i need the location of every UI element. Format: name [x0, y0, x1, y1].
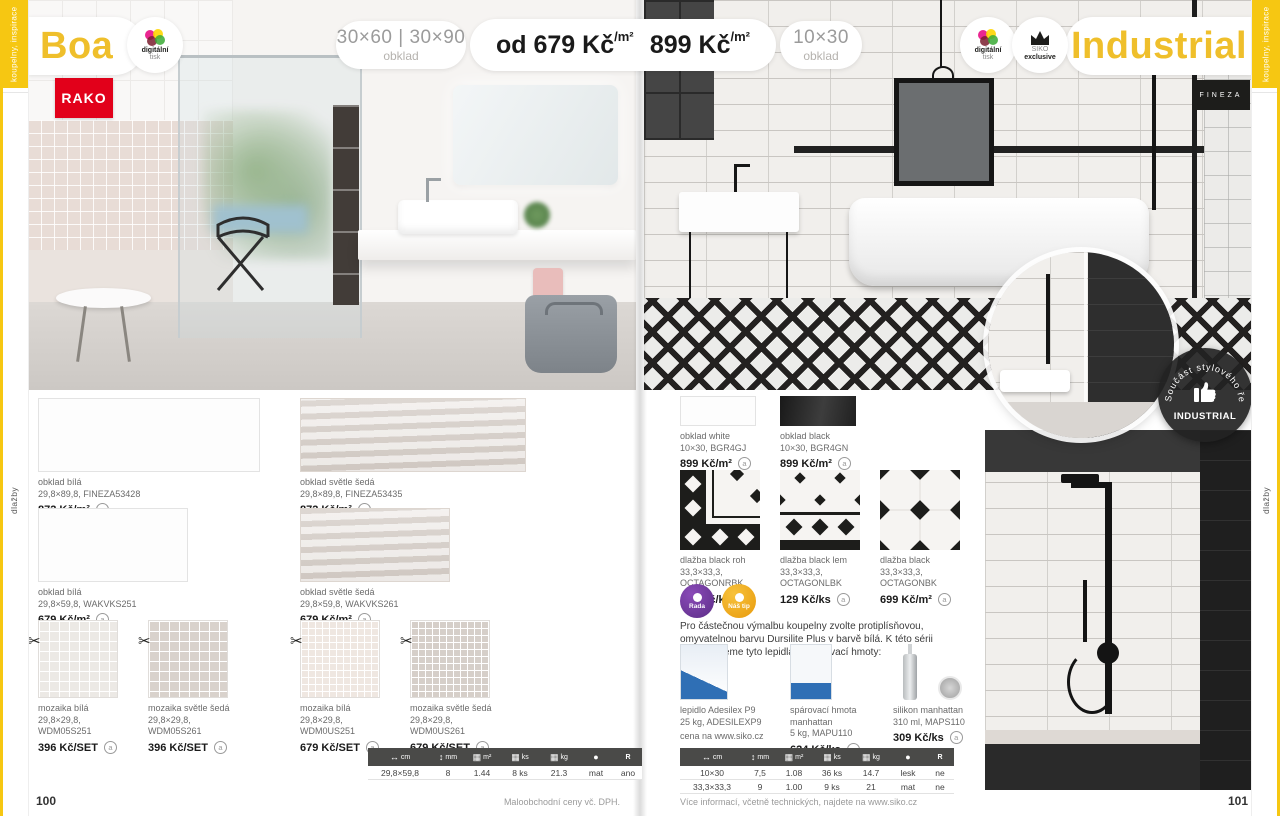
thickness-col-header: ↕mm: [432, 753, 464, 762]
product-card: dlažba black lem 33,3×33,3, OCTAGONLBK 1…: [780, 470, 870, 606]
corner-tab: koupelny, inspirace: [1252, 0, 1280, 88]
product-card: lepidlo Adesilex P9 25 kg, ADESILEXP9 ce…: [680, 644, 784, 743]
scissors-icon: ✂: [28, 632, 41, 650]
product-card: obklad white 10×30, BGR4GJ 899 Kč/m²a: [680, 396, 770, 470]
tile-octagon-black-image: [880, 470, 960, 550]
corner-tab: koupelny, inspirace: [0, 0, 28, 88]
right-category-sidebar: koupelny, inspirace dlažby stavební chem…: [1251, 0, 1280, 816]
industrial-price: 899 Kč/m²: [650, 31, 750, 60]
plant: [524, 202, 550, 228]
shower-hose: [1067, 650, 1117, 714]
page-gutter: [633, 0, 647, 816]
hand-shower: [1083, 580, 1087, 642]
size-col-header: ↔cm: [680, 753, 744, 762]
framed-mirror: [894, 78, 994, 186]
washbasin: [398, 200, 518, 234]
tile-image: [300, 398, 526, 472]
fineza-logo: FINEZA: [1192, 80, 1250, 110]
pcs-col-header: ▦ks: [500, 753, 540, 762]
mirror: [453, 85, 618, 185]
digital-print-icon: [143, 29, 167, 47]
availability-icon: a: [837, 593, 850, 606]
faucet: [426, 178, 429, 202]
tile-octagon-border-image: [780, 470, 860, 550]
product-card: ✂ mozaika bílá 29,8×29,8, WDM0US251 679 …: [300, 620, 394, 754]
surface-col-header: ●: [890, 753, 926, 762]
tip-badge: Náš tip: [722, 584, 756, 618]
rectified-col-header: R: [926, 754, 954, 761]
series-title-boa: Boa: [40, 25, 113, 68]
sqm-col-header: ▦m²: [464, 753, 500, 762]
box-icon: ▦: [473, 753, 482, 762]
thickness-col-header: ↕mm: [744, 753, 776, 762]
surface-icon: ●: [593, 753, 598, 762]
product-card: dlažba black 33,3×33,3, OCTAGONBK 699 Kč…: [880, 470, 970, 606]
availability-icon: a: [214, 741, 227, 754]
mosaic-image: [410, 620, 490, 698]
kg-col-header: ▦kg: [540, 753, 578, 762]
product-card: obklad světle šedá 29,8×59,8, WAKVKS261 …: [300, 508, 450, 626]
inset-basin: [1000, 370, 1070, 392]
box-icon: ▦: [823, 753, 832, 762]
inset-shower-bar: [1046, 274, 1050, 364]
availability-icon: a: [104, 741, 117, 754]
console-washbasin: [679, 192, 799, 232]
scissors-icon: ✂: [400, 632, 413, 650]
tile-image: [680, 396, 756, 426]
product-card: ✂ mozaika světle šedá 29,8×29,8, WDM0US2…: [410, 620, 504, 754]
box-icon: ▦: [862, 753, 871, 762]
side-table-top: [56, 288, 151, 308]
spec-table-industrial: ↔cm ↕mm ▦m² ▦ks ▦kg ● R 10×307,51.0836 k…: [680, 748, 954, 794]
pcs-col-header: ▦ks: [812, 753, 852, 762]
rada-badge: Rada: [680, 584, 714, 618]
availability-icon: a: [938, 593, 951, 606]
color-swatch: [938, 676, 962, 700]
box-icon: ▦: [550, 753, 559, 762]
faucet-spout: [426, 178, 441, 181]
footer-note-right: Více informací, včetně technických, najd…: [680, 797, 917, 807]
tip-icon: [735, 593, 744, 602]
page-number-right: 101: [1228, 794, 1248, 808]
inset-circle-photo: [988, 252, 1174, 438]
left-category-sidebar: koupelny, inspirace dlažby stavební chem…: [0, 0, 29, 816]
product-card: spárovací hmota manhattan 5 kg, MAPU110 …: [790, 644, 890, 756]
shelf-unit: [333, 105, 359, 305]
scissors-icon: ✂: [138, 632, 151, 650]
price-pill: od 679 Kč/m² 899 Kč/m²: [470, 19, 776, 71]
table-row: 33,3×33,391.009 ks21matne: [680, 780, 954, 794]
surface-col-header: ●: [578, 753, 614, 762]
product-card: silikon manhattan 310 ml, MAPS110 309 Kč…: [893, 644, 973, 744]
shower-detail-photo: [985, 430, 1252, 790]
surface-icon: ●: [905, 753, 910, 762]
mosaic-image: [148, 620, 228, 698]
availability-icon: a: [838, 457, 851, 470]
dark-floor: [985, 744, 1200, 790]
inset-floor: [988, 402, 1174, 438]
box-icon: ▦: [785, 753, 794, 762]
tile-image: [300, 508, 450, 582]
sidebar-item-dlazby[interactable]: dlažby: [0, 92, 28, 816]
catalog-spread: Součást stylového řešení INDUSTRIAL Boa …: [0, 0, 1280, 816]
dark-tile-column: [1200, 430, 1252, 790]
box-icon: ▦: [511, 753, 520, 762]
availability-icon: a: [950, 731, 963, 744]
table-row: 29,8×59,881.448 ks21.3matano: [368, 766, 642, 780]
ledge: [985, 730, 1200, 744]
thickness-icon: ↕: [751, 753, 756, 762]
scissors-icon: ✂: [290, 632, 303, 650]
digital-print-icon: [976, 29, 1000, 47]
size-pill-industrial: 10×30 obklad: [780, 21, 862, 69]
tile-image: [780, 396, 856, 426]
black-faucet: [734, 164, 737, 192]
crown-icon: [1029, 29, 1051, 46]
industrial-series-pill: Industrial: [1066, 17, 1252, 75]
grout-bag-image: [790, 644, 890, 700]
sqm-col-header: ▦m²: [776, 753, 812, 762]
bulb-icon: [693, 593, 702, 602]
basket-handle: [545, 302, 603, 315]
page-number-left: 100: [36, 794, 56, 808]
digital-print-badge-left: digitální tisk: [127, 17, 183, 73]
size-icon: ↔: [390, 753, 399, 762]
size-icon: ↔: [702, 753, 711, 762]
rain-head: [1061, 474, 1099, 483]
product-card: ✂ mozaika bílá 29,8×29,8, WDM05S251 396 …: [38, 620, 132, 754]
digital-print-badge-right: digitální tisk: [960, 17, 1016, 73]
size-col-header: ↔cm: [368, 753, 432, 762]
product-card: ✂ mozaika světle šedá 29,8×29,8, WDM05S2…: [148, 620, 242, 754]
table-row: 10×307,51.0836 ks14.7leskne: [680, 766, 954, 780]
wire-chair: [203, 195, 283, 295]
mosaic-image: [38, 620, 118, 698]
availability-icon: a: [738, 457, 751, 470]
size-pill-boa: 30×60 | 30×90 obklad: [336, 21, 466, 69]
tile-image: [38, 398, 260, 472]
rectified-col-header: R: [614, 754, 642, 761]
thumbs-up-icon: [1194, 382, 1216, 402]
tile-image: [38, 508, 188, 582]
footer-note-left: Maloobchodní ceny vč. DPH.: [380, 797, 620, 807]
product-card: obklad black 10×30, BGR4GN 899 Kč/m²a: [780, 396, 870, 470]
tile-octagon-corner-image: [680, 470, 760, 550]
black-faucet-spout: [734, 164, 750, 167]
vanity-shelf: [358, 230, 636, 260]
pendant-wire: [940, 0, 942, 68]
mosaic-image: [300, 620, 380, 698]
kg-col-header: ▦kg: [852, 753, 890, 762]
adhesive-bag-image: [680, 644, 784, 700]
spec-table-boa: ↔cm ↕mm ▦m² ▦ks ▦kg ● R 29,8×59,881.448 …: [368, 748, 642, 780]
edge-accent-left: [0, 0, 3, 816]
industrial-stamp: Součást stylového řešení INDUSTRIAL: [1158, 348, 1252, 442]
sidebar-item-dlazby[interactable]: dlažby: [1252, 92, 1280, 816]
boa-price: od 679 Kč/m²: [496, 31, 634, 60]
series-title-industrial: Industrial: [1071, 25, 1247, 68]
thickness-icon: ↕: [439, 753, 444, 762]
black-accent-stripe: [794, 146, 1252, 153]
siko-exclusive-badge: SIKO exclusive: [1012, 17, 1068, 73]
product-card: obklad bílá 29,8×59,8, WAKVKS251 679 Kč/…: [38, 508, 188, 626]
stamp-label: INDUSTRIAL: [1158, 411, 1252, 422]
rako-logo: RAKO: [55, 78, 113, 118]
